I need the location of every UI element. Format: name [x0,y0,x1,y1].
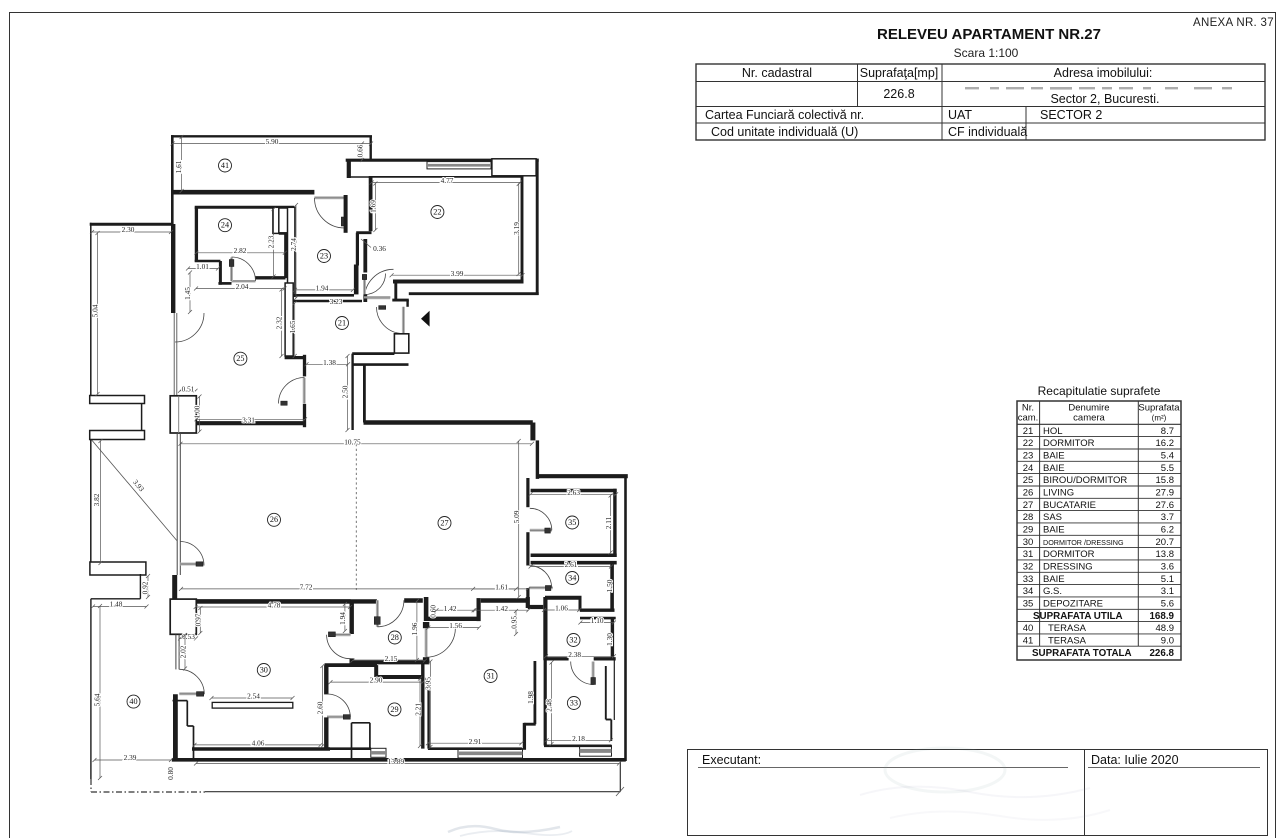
svg-text:13.89: 13.89 [388,757,405,766]
svg-text:48.9: 48.9 [1156,623,1175,634]
svg-text:2.32: 2.32 [274,316,283,329]
svg-text:2.18: 2.18 [572,734,585,743]
svg-text:1.69: 1.69 [369,200,378,213]
svg-text:5.4: 5.4 [1161,451,1174,462]
svg-text:2.63: 2.63 [567,488,580,497]
svg-text:5.64: 5.64 [93,693,102,706]
svg-text:28: 28 [1023,512,1034,523]
svg-text:27.6: 27.6 [1156,500,1175,511]
svg-text:2.11: 2.11 [604,516,613,529]
svg-text:30: 30 [260,665,268,674]
svg-text:3.23: 3.23 [330,297,343,306]
svg-text:15.8: 15.8 [1156,475,1175,486]
svg-text:30: 30 [1023,537,1034,548]
svg-text:camera: camera [1073,413,1105,424]
svg-text:2.15: 2.15 [385,654,398,663]
svg-text:0.97: 0.97 [194,613,203,626]
svg-text:1.45: 1.45 [183,287,192,300]
svg-text:TERASA: TERASA [1048,636,1087,647]
svg-text:1.94: 1.94 [338,612,347,625]
svg-text:BAIE: BAIE [1043,525,1065,536]
svg-text:1.56: 1.56 [449,621,462,630]
svg-text:41: 41 [1023,636,1034,647]
svg-text:Suprafata: Suprafata [1138,403,1180,414]
svg-text:1.98: 1.98 [526,691,535,704]
svg-text:3.19: 3.19 [512,222,521,235]
svg-text:(m²): (m²) [1152,414,1167,423]
svg-text:1.00: 1.00 [193,405,202,418]
svg-text:2.90: 2.90 [370,676,383,685]
svg-text:34: 34 [1023,586,1034,597]
svg-text:5.90: 5.90 [266,137,279,146]
svg-text:3.1: 3.1 [1161,586,1174,597]
svg-text:3.95: 3.95 [424,677,433,690]
svg-text:1.30: 1.30 [605,633,614,646]
svg-text:DORMITOR: DORMITOR [1043,438,1095,449]
svg-text:2.82: 2.82 [234,246,247,255]
svg-text:168.9: 168.9 [1149,611,1174,622]
svg-text:1.61: 1.61 [495,583,508,592]
svg-text:2.39: 2.39 [124,753,137,762]
svg-text:22: 22 [433,207,441,216]
svg-text:HOL: HOL [1043,426,1063,437]
svg-text:226.8: 226.8 [1149,648,1174,659]
svg-text:21: 21 [338,318,346,327]
svg-text:5.09: 5.09 [512,510,521,523]
svg-text:26: 26 [270,515,278,524]
svg-text:33: 33 [1023,574,1034,585]
svg-text:2.61: 2.61 [565,560,578,569]
svg-text:29: 29 [390,705,398,714]
svg-text:35: 35 [1023,599,1034,610]
svg-text:26: 26 [1023,488,1034,499]
svg-text:28: 28 [391,633,399,642]
svg-text:16.2: 16.2 [1156,438,1175,449]
svg-text:2.02: 2.02 [178,645,187,658]
svg-text:3.99: 3.99 [451,269,464,278]
svg-text:3.82: 3.82 [92,493,101,506]
svg-text:41: 41 [221,161,229,170]
svg-text:3.31: 3.31 [242,415,255,424]
svg-text:3.7: 3.7 [1161,512,1174,523]
svg-text:TERASA: TERASA [1048,623,1087,634]
svg-text:1.94: 1.94 [316,283,329,292]
svg-text:10.75: 10.75 [344,437,361,446]
svg-text:25: 25 [1023,475,1034,486]
svg-text:1.48: 1.48 [110,600,123,609]
svg-text:5.1: 5.1 [1161,574,1174,585]
svg-text:7.72: 7.72 [300,583,313,592]
svg-text:5.6: 5.6 [1161,599,1174,610]
svg-text:DORMITOR: DORMITOR [1043,549,1095,560]
svg-text:24: 24 [221,221,229,230]
svg-text:23: 23 [1023,451,1034,462]
svg-text:3.6: 3.6 [1161,562,1174,573]
svg-text:0.66: 0.66 [356,144,365,157]
svg-text:0.60: 0.60 [429,605,438,618]
svg-text:1.50: 1.50 [605,579,614,592]
svg-text:LIVING: LIVING [1043,488,1074,499]
svg-text:31: 31 [487,671,495,680]
svg-text:0.36: 0.36 [373,244,386,253]
svg-text:23: 23 [320,251,328,260]
svg-text:25: 25 [236,354,244,363]
svg-text:1.38: 1.38 [323,358,336,367]
svg-text:21: 21 [1023,426,1034,437]
svg-text:24: 24 [1023,463,1034,474]
svg-text:40: 40 [129,697,137,706]
svg-text:SAS: SAS [1043,512,1062,523]
svg-text:G.S.: G.S. [1043,586,1062,597]
svg-text:SUPRAFATA TOTALA: SUPRAFATA TOTALA [1032,648,1132,659]
svg-text:0.95: 0.95 [509,616,518,629]
svg-text:1.06: 1.06 [555,604,568,613]
svg-text:22: 22 [1023,438,1034,449]
svg-text:4.06: 4.06 [252,738,265,747]
svg-text:BAIE: BAIE [1043,574,1065,585]
svg-text:2.04: 2.04 [236,282,249,291]
svg-text:13.8: 13.8 [1156,549,1175,560]
svg-text:BIROU/DORMITOR: BIROU/DORMITOR [1043,475,1127,486]
svg-text:2.54: 2.54 [247,691,260,700]
svg-text:0.80: 0.80 [166,767,175,780]
svg-text:27: 27 [1023,500,1034,511]
svg-text:2.91: 2.91 [469,737,482,746]
svg-text:SUPRAFATA UTILA: SUPRAFATA UTILA [1033,611,1123,622]
svg-text:DORMITOR /DRESSING: DORMITOR /DRESSING [1043,538,1124,547]
svg-text:0.53: 0.53 [182,632,195,641]
svg-text:4.77: 4.77 [441,176,454,185]
svg-text:2.50: 2.50 [340,385,349,398]
svg-text:32: 32 [569,635,577,644]
svg-text:27: 27 [440,518,448,527]
svg-text:1.65: 1.65 [288,320,297,333]
svg-text:BAIE: BAIE [1043,451,1065,462]
svg-text:DRESSING: DRESSING [1043,562,1093,573]
svg-text:32: 32 [1023,562,1034,573]
svg-text:1.61: 1.61 [174,160,183,173]
svg-text:4.78: 4.78 [268,601,281,610]
svg-text:0.92: 0.92 [140,581,149,594]
svg-text:2.23: 2.23 [267,235,276,248]
svg-text:6.2: 6.2 [1161,525,1174,536]
svg-text:1.42: 1.42 [444,604,457,613]
svg-text:1.10: 1.10 [591,616,604,625]
svg-text:31: 31 [1023,549,1034,560]
svg-text:2.74: 2.74 [289,238,298,251]
svg-text:BAIE: BAIE [1043,463,1065,474]
svg-text:1.01: 1.01 [196,262,209,271]
svg-text:9.0: 9.0 [1161,636,1174,647]
svg-text:40: 40 [1023,623,1034,634]
svg-text:cam.: cam. [1018,413,1039,424]
svg-text:1.42: 1.42 [495,604,508,613]
svg-text:0.51: 0.51 [182,384,195,393]
svg-text:8.7: 8.7 [1161,426,1174,437]
svg-text:33: 33 [570,698,578,707]
svg-text:3.93: 3.93 [131,478,146,494]
svg-text:20.7: 20.7 [1156,537,1175,548]
svg-text:1.96: 1.96 [410,622,419,635]
svg-text:35: 35 [568,518,576,527]
svg-text:29: 29 [1023,525,1034,536]
svg-text:2.21: 2.21 [413,703,422,716]
svg-text:DEPOZITARE: DEPOZITARE [1043,599,1103,610]
svg-text:BUCATARIE: BUCATARIE [1043,500,1096,511]
svg-text:5.5: 5.5 [1161,463,1174,474]
svg-text:2.30: 2.30 [122,225,135,234]
svg-text:34: 34 [568,573,576,582]
svg-text:2.60: 2.60 [316,701,325,714]
svg-text:27.9: 27.9 [1156,488,1175,499]
svg-text:5.04: 5.04 [91,304,100,317]
svg-text:2.48: 2.48 [545,699,554,712]
svg-text:2.38: 2.38 [568,650,581,659]
